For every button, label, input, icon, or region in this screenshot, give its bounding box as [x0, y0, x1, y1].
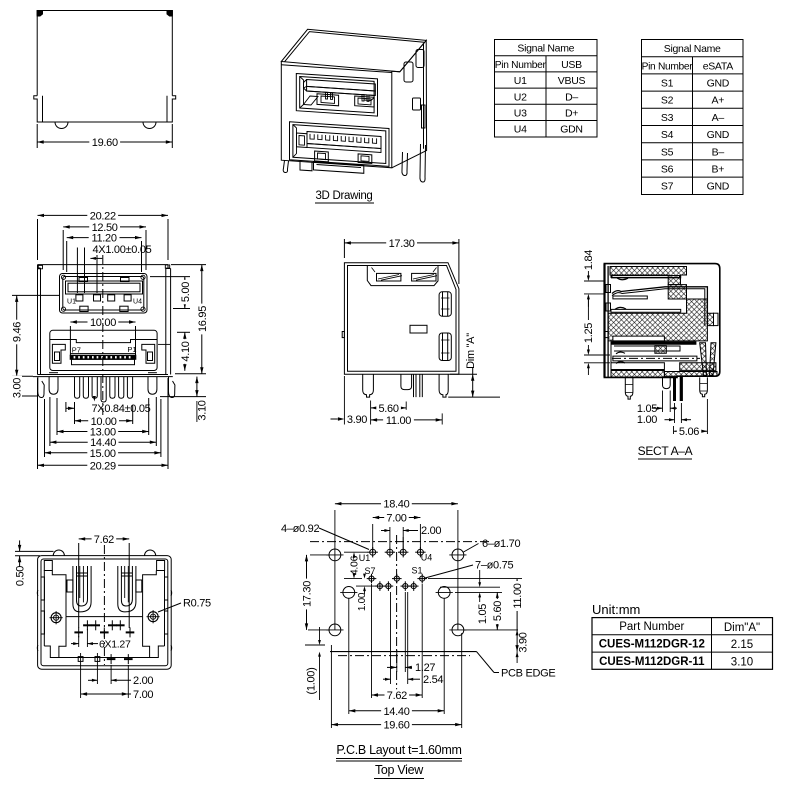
svg-text:19.60: 19.60 — [383, 720, 409, 732]
svg-text:15.00: 15.00 — [90, 448, 116, 460]
svg-text:3.10: 3.10 — [731, 656, 753, 668]
svg-text:3.90: 3.90 — [518, 632, 530, 652]
svg-text:Top View: Top View — [375, 763, 424, 777]
svg-text:S5: S5 — [661, 146, 674, 158]
svg-text:U4: U4 — [421, 553, 433, 563]
svg-text:7.62: 7.62 — [94, 534, 114, 546]
svg-text:4.06: 4.06 — [349, 555, 361, 575]
svg-text:GND: GND — [707, 78, 730, 90]
svg-text:4.10: 4.10 — [180, 341, 192, 361]
svg-text:4X1.00±0.05: 4X1.00±0.05 — [92, 244, 151, 256]
svg-text:Signal Name: Signal Name — [517, 43, 574, 55]
svg-text:5.06: 5.06 — [679, 426, 699, 438]
svg-text:CUES-M112DGR-11: CUES-M112DGR-11 — [599, 656, 705, 668]
svg-text:11.20: 11.20 — [91, 233, 116, 245]
svg-text:3D Drawing: 3D Drawing — [315, 190, 372, 202]
svg-text:18.40: 18.40 — [383, 499, 409, 511]
svg-text:S3: S3 — [661, 112, 674, 124]
svg-text:PCB EDGE: PCB EDGE — [501, 668, 555, 680]
svg-text:3.00: 3.00 — [12, 378, 24, 398]
svg-text:1.27: 1.27 — [415, 662, 435, 674]
svg-text:19.60: 19.60 — [92, 137, 118, 149]
svg-text:Signal Name: Signal Name — [664, 43, 721, 55]
svg-text:R0.75: R0.75 — [183, 598, 211, 610]
svg-text:2.54: 2.54 — [423, 674, 443, 686]
svg-text:Unit:mm: Unit:mm — [592, 602, 640, 617]
svg-text:3.90: 3.90 — [347, 414, 367, 426]
svg-text:(1.00): (1.00) — [306, 668, 318, 695]
svg-text:1.00: 1.00 — [357, 592, 368, 611]
svg-text:0.50: 0.50 — [15, 566, 27, 586]
svg-text:3.10: 3.10 — [197, 400, 209, 420]
svg-text:2.15: 2.15 — [731, 639, 753, 651]
svg-text:U4: U4 — [514, 124, 527, 136]
svg-text:S7: S7 — [661, 181, 674, 193]
svg-text:14.40: 14.40 — [383, 706, 409, 718]
svg-text:S4: S4 — [661, 129, 674, 141]
svg-text:7.00: 7.00 — [386, 513, 406, 525]
svg-text:D+: D+ — [565, 108, 578, 120]
svg-text:USB: USB — [561, 59, 582, 71]
svg-text:4–ø0.92: 4–ø0.92 — [281, 523, 319, 535]
svg-text:GND: GND — [707, 181, 730, 193]
svg-text:7X0.84±0.05: 7X0.84±0.05 — [91, 403, 150, 415]
svg-text:5.00: 5.00 — [180, 282, 192, 302]
svg-text:Dim "A": Dim "A" — [465, 333, 477, 369]
svg-text:1.84: 1.84 — [583, 250, 595, 270]
svg-text:GND: GND — [707, 129, 730, 141]
svg-text:GDN: GDN — [560, 124, 582, 136]
svg-text:11.00: 11.00 — [386, 415, 411, 427]
svg-text:VBUS: VBUS — [558, 75, 586, 87]
svg-text:6X1.27: 6X1.27 — [99, 638, 131, 650]
svg-text:S1: S1 — [661, 78, 674, 90]
svg-text:U1: U1 — [67, 299, 76, 306]
svg-text:20.22: 20.22 — [90, 210, 116, 222]
svg-text:S1: S1 — [411, 566, 422, 576]
svg-text:7.62: 7.62 — [387, 690, 407, 702]
svg-text:U1: U1 — [514, 75, 527, 87]
svg-text:11.00: 11.00 — [512, 583, 524, 608]
svg-text:eSATA: eSATA — [703, 60, 734, 72]
svg-text:20.29: 20.29 — [90, 460, 116, 472]
svg-text:S7: S7 — [364, 566, 375, 576]
svg-text:1.05: 1.05 — [477, 604, 489, 624]
svg-text:S2: S2 — [661, 95, 674, 107]
svg-text:2.00: 2.00 — [421, 525, 441, 537]
svg-text:U2: U2 — [514, 91, 527, 103]
svg-text:P7: P7 — [72, 346, 81, 355]
svg-text:B–: B– — [712, 146, 725, 158]
svg-text:9.46: 9.46 — [12, 322, 24, 342]
svg-text:1.00: 1.00 — [637, 414, 657, 426]
svg-text:SECT A–A: SECT A–A — [638, 444, 693, 458]
svg-text:17.30: 17.30 — [389, 238, 415, 250]
svg-text:Pin Number: Pin Number — [495, 60, 547, 71]
svg-text:U3: U3 — [514, 108, 527, 120]
svg-text:A–: A– — [712, 112, 725, 124]
svg-text:17.30: 17.30 — [302, 581, 314, 607]
svg-text:D–: D– — [565, 91, 578, 103]
svg-text:1.25: 1.25 — [583, 323, 595, 343]
svg-text:B+: B+ — [712, 164, 725, 176]
svg-text:P.C.B Layout t=1.60mm: P.C.B Layout t=1.60mm — [336, 743, 461, 757]
svg-text:7–ø0.75: 7–ø0.75 — [475, 560, 513, 572]
svg-text:P1: P1 — [127, 345, 136, 354]
svg-text:5.60: 5.60 — [492, 601, 504, 621]
svg-text:7.00: 7.00 — [133, 689, 153, 701]
svg-text:Dim"A": Dim"A" — [724, 622, 760, 634]
svg-text:U4: U4 — [133, 299, 142, 306]
svg-text:1.05: 1.05 — [637, 403, 657, 415]
svg-text:S6: S6 — [661, 164, 674, 176]
svg-text:A+: A+ — [712, 95, 725, 107]
svg-text:6–ø1.70: 6–ø1.70 — [482, 538, 520, 550]
svg-text:Pin Number: Pin Number — [642, 61, 694, 72]
svg-text:Part Number: Part Number — [619, 621, 684, 633]
svg-text:5.60: 5.60 — [378, 403, 398, 415]
svg-text:CUES-M112DGR-12: CUES-M112DGR-12 — [599, 639, 705, 651]
svg-text:16.95: 16.95 — [197, 306, 209, 332]
svg-text:2.00: 2.00 — [133, 675, 153, 687]
